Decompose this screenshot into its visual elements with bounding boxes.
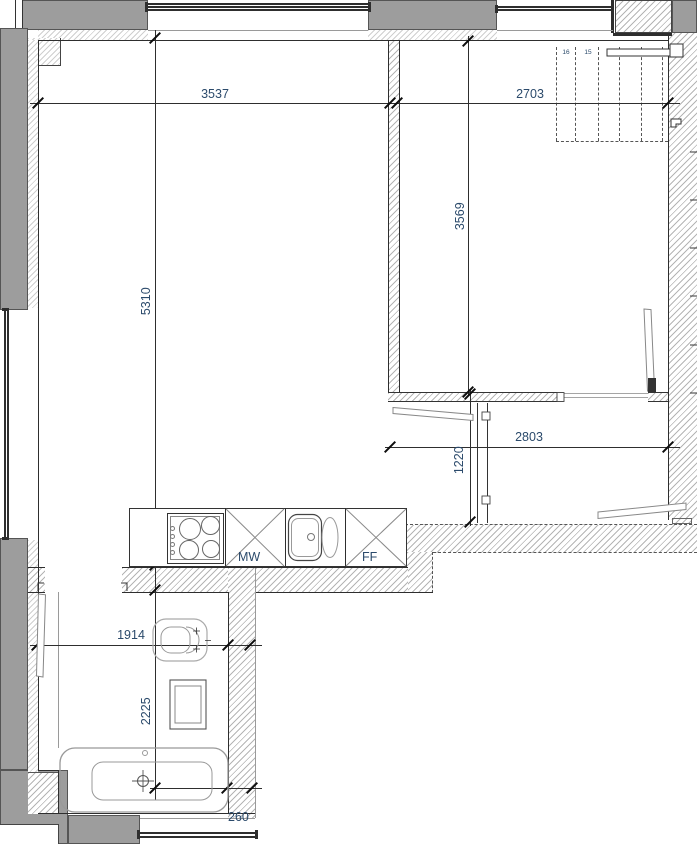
door-frame-right-room <box>648 378 656 392</box>
bathtub <box>60 748 228 812</box>
door-leaf-bathroom <box>37 594 46 677</box>
floor-plan-canvas: 16 15 14 13 12 11 3537 2703 3569 5310 28… <box>0 0 697 844</box>
sink-drainer <box>322 518 338 558</box>
door-jamb <box>557 393 564 402</box>
fixtures-layer <box>0 0 697 844</box>
partition-jamb <box>482 412 490 420</box>
washing-machine-inner <box>175 686 201 723</box>
partition-jamb <box>482 496 490 504</box>
fridge-label: FF <box>362 551 377 564</box>
door-threshold-right-room <box>563 394 648 398</box>
microwave-label: MW <box>238 551 260 564</box>
right-wall-ticks <box>690 152 697 393</box>
door-leaf-corridor <box>393 408 473 421</box>
door-stop-icon <box>671 119 681 127</box>
sink-drain <box>308 534 315 541</box>
toilet-fixing-marks <box>193 628 211 653</box>
bath-door-jamb <box>38 583 127 591</box>
toilet-bowl <box>161 627 190 653</box>
door-leaf-hall <box>598 503 686 519</box>
bathtub-overflow <box>143 751 148 756</box>
stair-handrail-post <box>670 44 683 57</box>
bathtub-drain-cross <box>132 770 154 792</box>
